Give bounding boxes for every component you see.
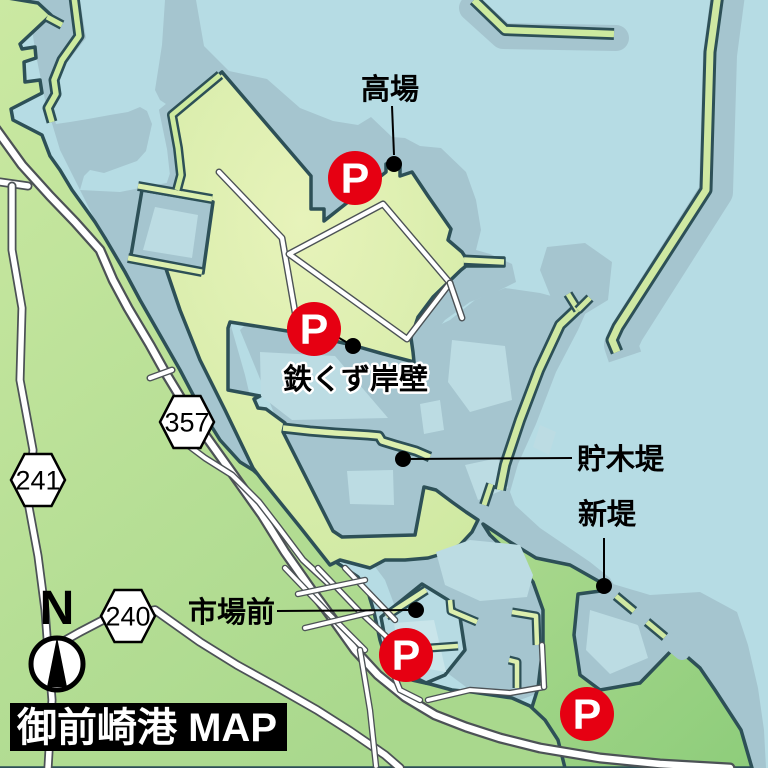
svg-text:P: P bbox=[300, 306, 329, 354]
svg-text:市場前: 市場前 bbox=[188, 595, 275, 629]
svg-text:御前崎港 MAP: 御前崎港 MAP bbox=[16, 706, 277, 750]
svg-text:357: 357 bbox=[164, 408, 209, 438]
svg-text:高場: 高場 bbox=[361, 73, 419, 106]
svg-text:P: P bbox=[392, 632, 421, 680]
svg-text:240: 240 bbox=[105, 602, 150, 632]
svg-text:P: P bbox=[341, 155, 370, 203]
svg-text:鉄くず岸壁: 鉄くず岸壁 bbox=[283, 362, 428, 396]
svg-text:P: P bbox=[573, 691, 602, 739]
svg-text:N: N bbox=[40, 582, 75, 635]
svg-text:貯木堤: 貯木堤 bbox=[577, 442, 665, 476]
svg-text:241: 241 bbox=[15, 466, 60, 496]
svg-text:新堤: 新堤 bbox=[578, 498, 637, 531]
